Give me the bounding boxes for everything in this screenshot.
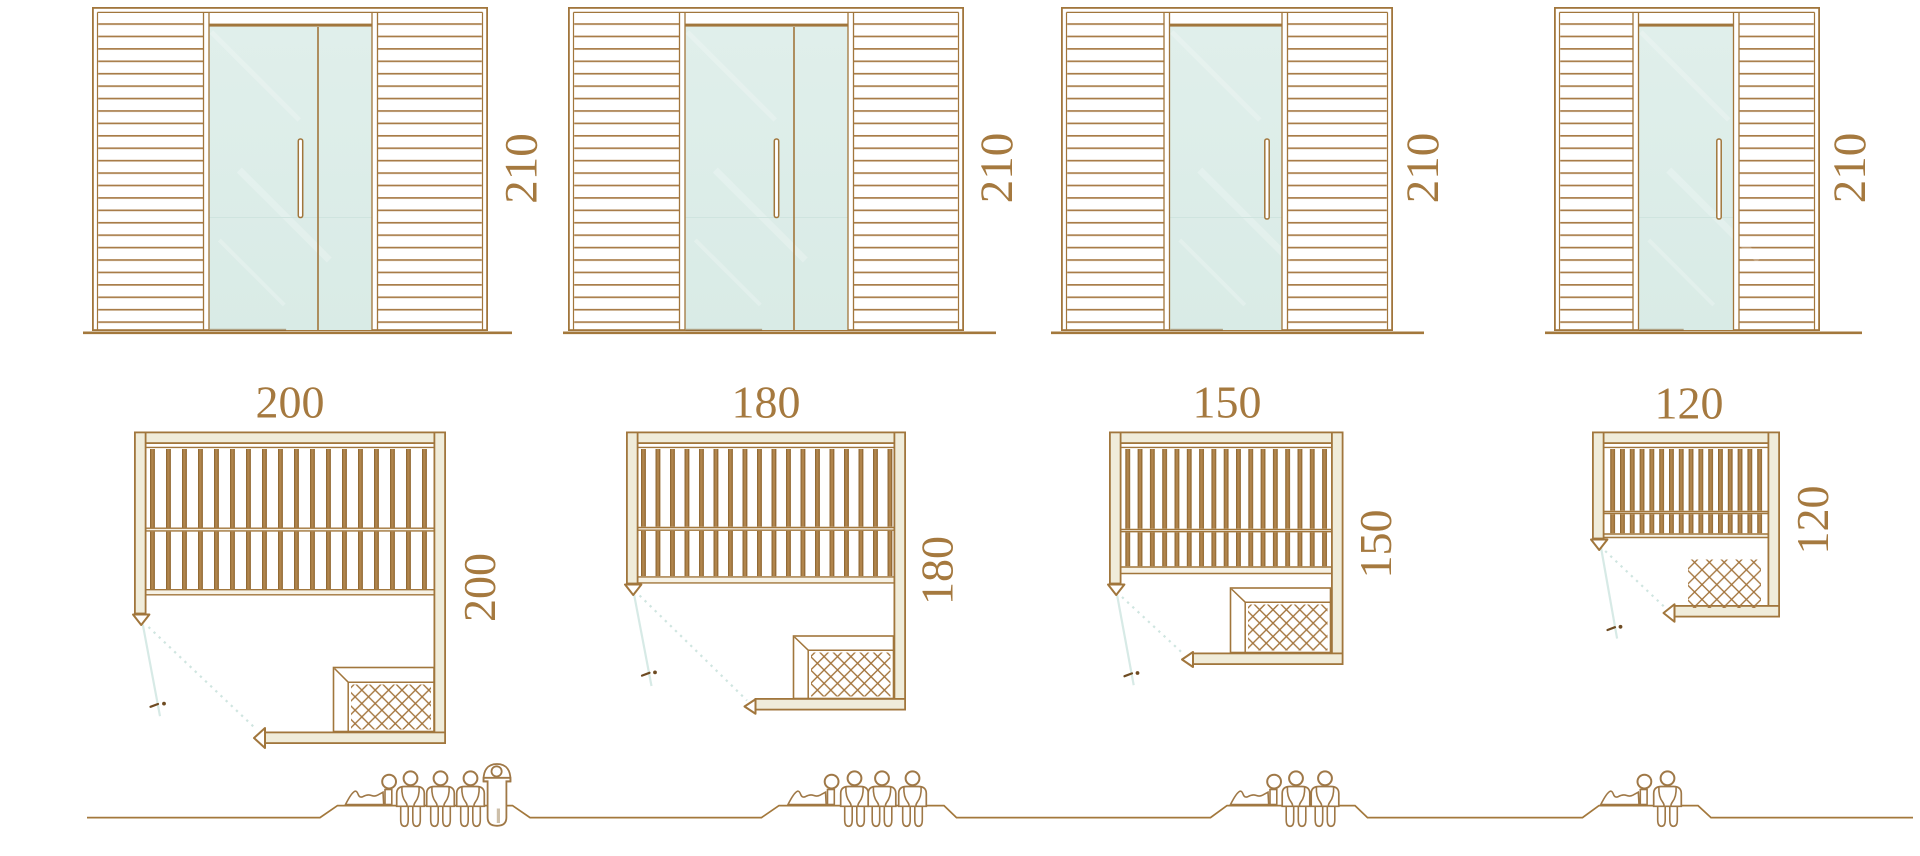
svg-text:210: 210 <box>1397 133 1449 204</box>
svg-text:200: 200 <box>256 377 325 428</box>
svg-text:210: 210 <box>496 133 548 204</box>
svg-text:180: 180 <box>732 377 801 428</box>
svg-text:180: 180 <box>912 536 963 605</box>
svg-text:150: 150 <box>1193 377 1262 428</box>
svg-text:120: 120 <box>1787 486 1838 555</box>
svg-text:150: 150 <box>1350 510 1401 579</box>
svg-text:120: 120 <box>1655 378 1724 429</box>
svg-text:210: 210 <box>1824 133 1876 204</box>
svg-text:200: 200 <box>454 553 505 622</box>
svg-text:210: 210 <box>971 133 1023 204</box>
